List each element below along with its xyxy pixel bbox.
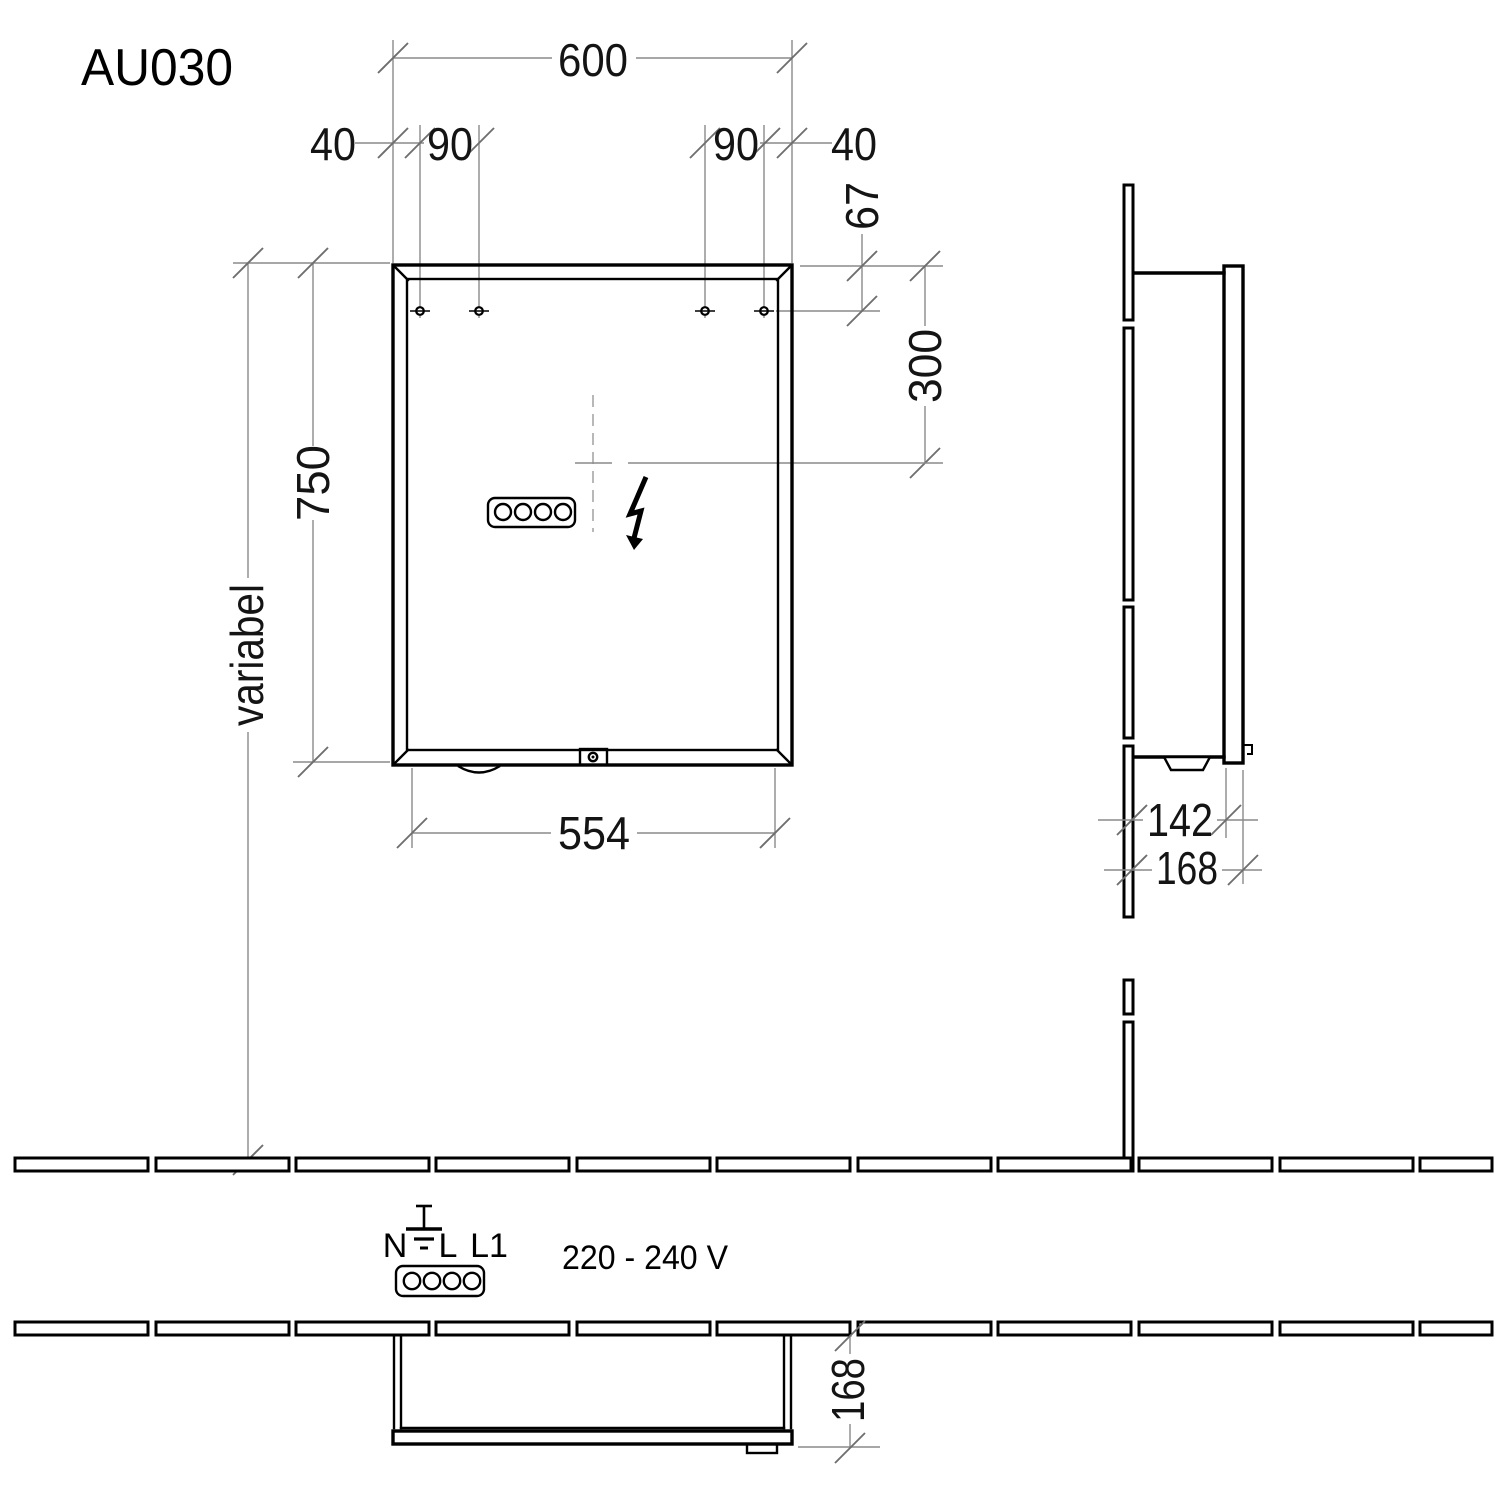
electrical-schematic: N L L1 220 - 240 V — [383, 1206, 729, 1296]
under-light — [1164, 757, 1210, 770]
dim-offset-90-left: 90 — [427, 118, 473, 170]
wall-line-side — [1124, 185, 1133, 1171]
earth-ground-symbol — [406, 1206, 442, 1248]
side-view: 142 168 — [1098, 185, 1262, 1171]
mounting-holes — [410, 307, 774, 315]
dim-offset-40-right: 40 — [831, 118, 877, 170]
dimension-drawing: AU030 600 40 90 90 40 67 — [0, 0, 1500, 1500]
bottom-view: 168 — [393, 1321, 880, 1463]
outlet-center-mark — [575, 395, 612, 532]
terminal-label-n: N — [383, 1227, 408, 1265]
model-label: AU030 — [81, 39, 233, 97]
handle-recess-arc — [458, 766, 500, 773]
dim-hole-top-67: 67 — [836, 182, 888, 230]
dim-mounting-variabel: variabel — [221, 584, 273, 726]
hole-depth-dimensions: 67 300 — [628, 182, 951, 478]
height-dimensions: 750 variabel — [221, 248, 390, 1175]
lightning-bolt-symbol — [626, 477, 646, 550]
terminal-block-front — [488, 498, 575, 527]
wall-band-lower — [15, 1322, 1492, 1335]
dim-offset-90-right: 90 — [713, 118, 759, 170]
terminal-block-schematic — [396, 1266, 484, 1296]
dim-bottom-depth-168: 168 — [822, 1358, 874, 1422]
technical-drawing-page: AU030 600 40 90 90 40 67 — [0, 0, 1500, 1500]
dim-body-depth-142: 142 — [1147, 794, 1213, 846]
dim-inner-width-554: 554 — [558, 807, 630, 859]
terminal-label-l1: L1 — [470, 1227, 508, 1265]
bottom-width-dimension: 554 — [397, 768, 790, 859]
dim-total-depth-168: 168 — [1156, 842, 1218, 894]
front-view — [393, 265, 792, 773]
wall-band-upper — [15, 1158, 1492, 1171]
terminal-label-l: L — [439, 1227, 458, 1265]
dim-outlet-300: 300 — [899, 329, 951, 403]
bottom-sensor — [580, 749, 607, 765]
dim-width-600: 600 — [558, 34, 628, 86]
voltage-range-label: 220 - 240 V — [562, 1239, 728, 1277]
dim-offset-40-left: 40 — [310, 118, 356, 170]
bottom-depth-dimension: 168 — [798, 1321, 880, 1463]
dim-height-750: 750 — [287, 445, 339, 521]
